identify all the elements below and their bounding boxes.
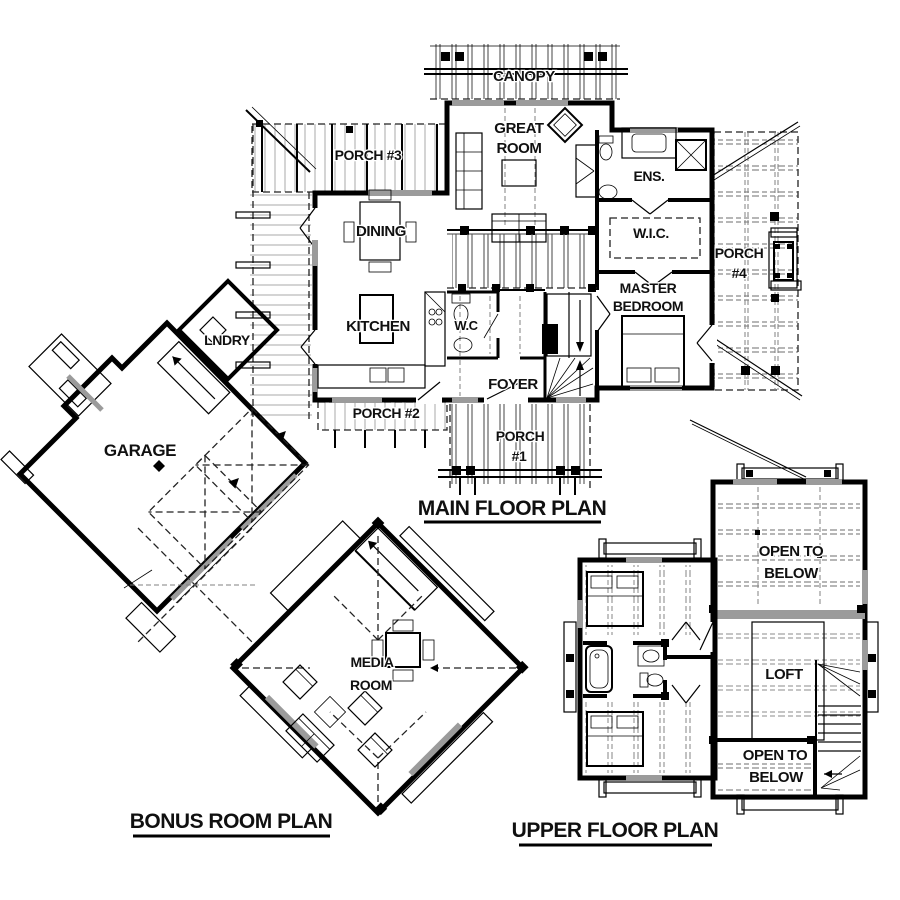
label-wc: W.C bbox=[454, 318, 478, 333]
label-media-room-2: ROOM bbox=[350, 677, 392, 693]
fireplace bbox=[548, 108, 582, 142]
label-porch-1-2: #1 bbox=[512, 448, 527, 464]
label-canopy: CANOPY bbox=[493, 68, 555, 85]
label-foyer: FOYER bbox=[488, 376, 538, 393]
label-open-below-top-2: BELOW bbox=[764, 565, 819, 582]
label-open-below-top-1: OPEN TO bbox=[759, 543, 824, 560]
label-great-room-2: ROOM bbox=[496, 140, 541, 157]
label-great-room-1: GREAT bbox=[494, 120, 544, 137]
label-porch-3: PORCH #3 bbox=[335, 147, 402, 163]
label-master-1: MASTER bbox=[620, 280, 677, 296]
label-porch-4-2: #4 bbox=[732, 265, 747, 281]
label-open-below-bottom-1: OPEN TO bbox=[743, 747, 808, 764]
bonus-room-plan: MEDIA ROOM BONUS ROOM PLAN bbox=[130, 491, 549, 836]
garage-stall-2 bbox=[195, 403, 314, 522]
ensuite-fixtures bbox=[599, 128, 706, 199]
upper-floor-title: UPPER FLOOR PLAN bbox=[512, 819, 719, 842]
garage-stall-1 bbox=[148, 450, 267, 569]
upper-left-wing bbox=[577, 557, 715, 781]
garage-center-marker bbox=[153, 460, 165, 472]
floor-plan-sheet: CANOPY GREAT ROOM PORCH #3 DINING ENS. W… bbox=[0, 0, 900, 900]
bonus-room-title: BONUS ROOM PLAN bbox=[130, 810, 333, 833]
porch-4-deck bbox=[690, 122, 808, 481]
label-porch-4-1: PORCH bbox=[715, 245, 764, 261]
bonus-ceiling-lines bbox=[242, 536, 516, 806]
main-stairs bbox=[542, 292, 593, 398]
label-wic: W.I.C. bbox=[633, 225, 669, 241]
label-media-room-1: MEDIA bbox=[350, 654, 393, 670]
label-open-below-bottom-2: BELOW bbox=[749, 769, 804, 786]
label-loft: LOFT bbox=[765, 666, 803, 683]
kitchen-fixtures bbox=[318, 292, 445, 388]
media-room-furniture bbox=[283, 620, 434, 767]
label-laundry: LNDRY bbox=[204, 332, 251, 348]
label-porch-1-1: PORCH bbox=[496, 428, 545, 444]
master-bed bbox=[622, 316, 684, 388]
floor-plan-drawing: CANOPY GREAT ROOM PORCH #3 DINING ENS. W… bbox=[0, 0, 900, 900]
label-master-2: BEDROOM bbox=[613, 298, 683, 314]
garage-entry-step bbox=[126, 603, 175, 652]
label-dining: DINING bbox=[356, 223, 406, 240]
label-garage: GARAGE bbox=[104, 441, 176, 460]
main-floor-title: MAIN FLOOR PLAN bbox=[418, 497, 606, 520]
label-porch-2: PORCH #2 bbox=[353, 405, 420, 421]
label-ensuite: ENS. bbox=[633, 168, 664, 184]
label-kitchen: KITCHEN bbox=[346, 318, 410, 335]
